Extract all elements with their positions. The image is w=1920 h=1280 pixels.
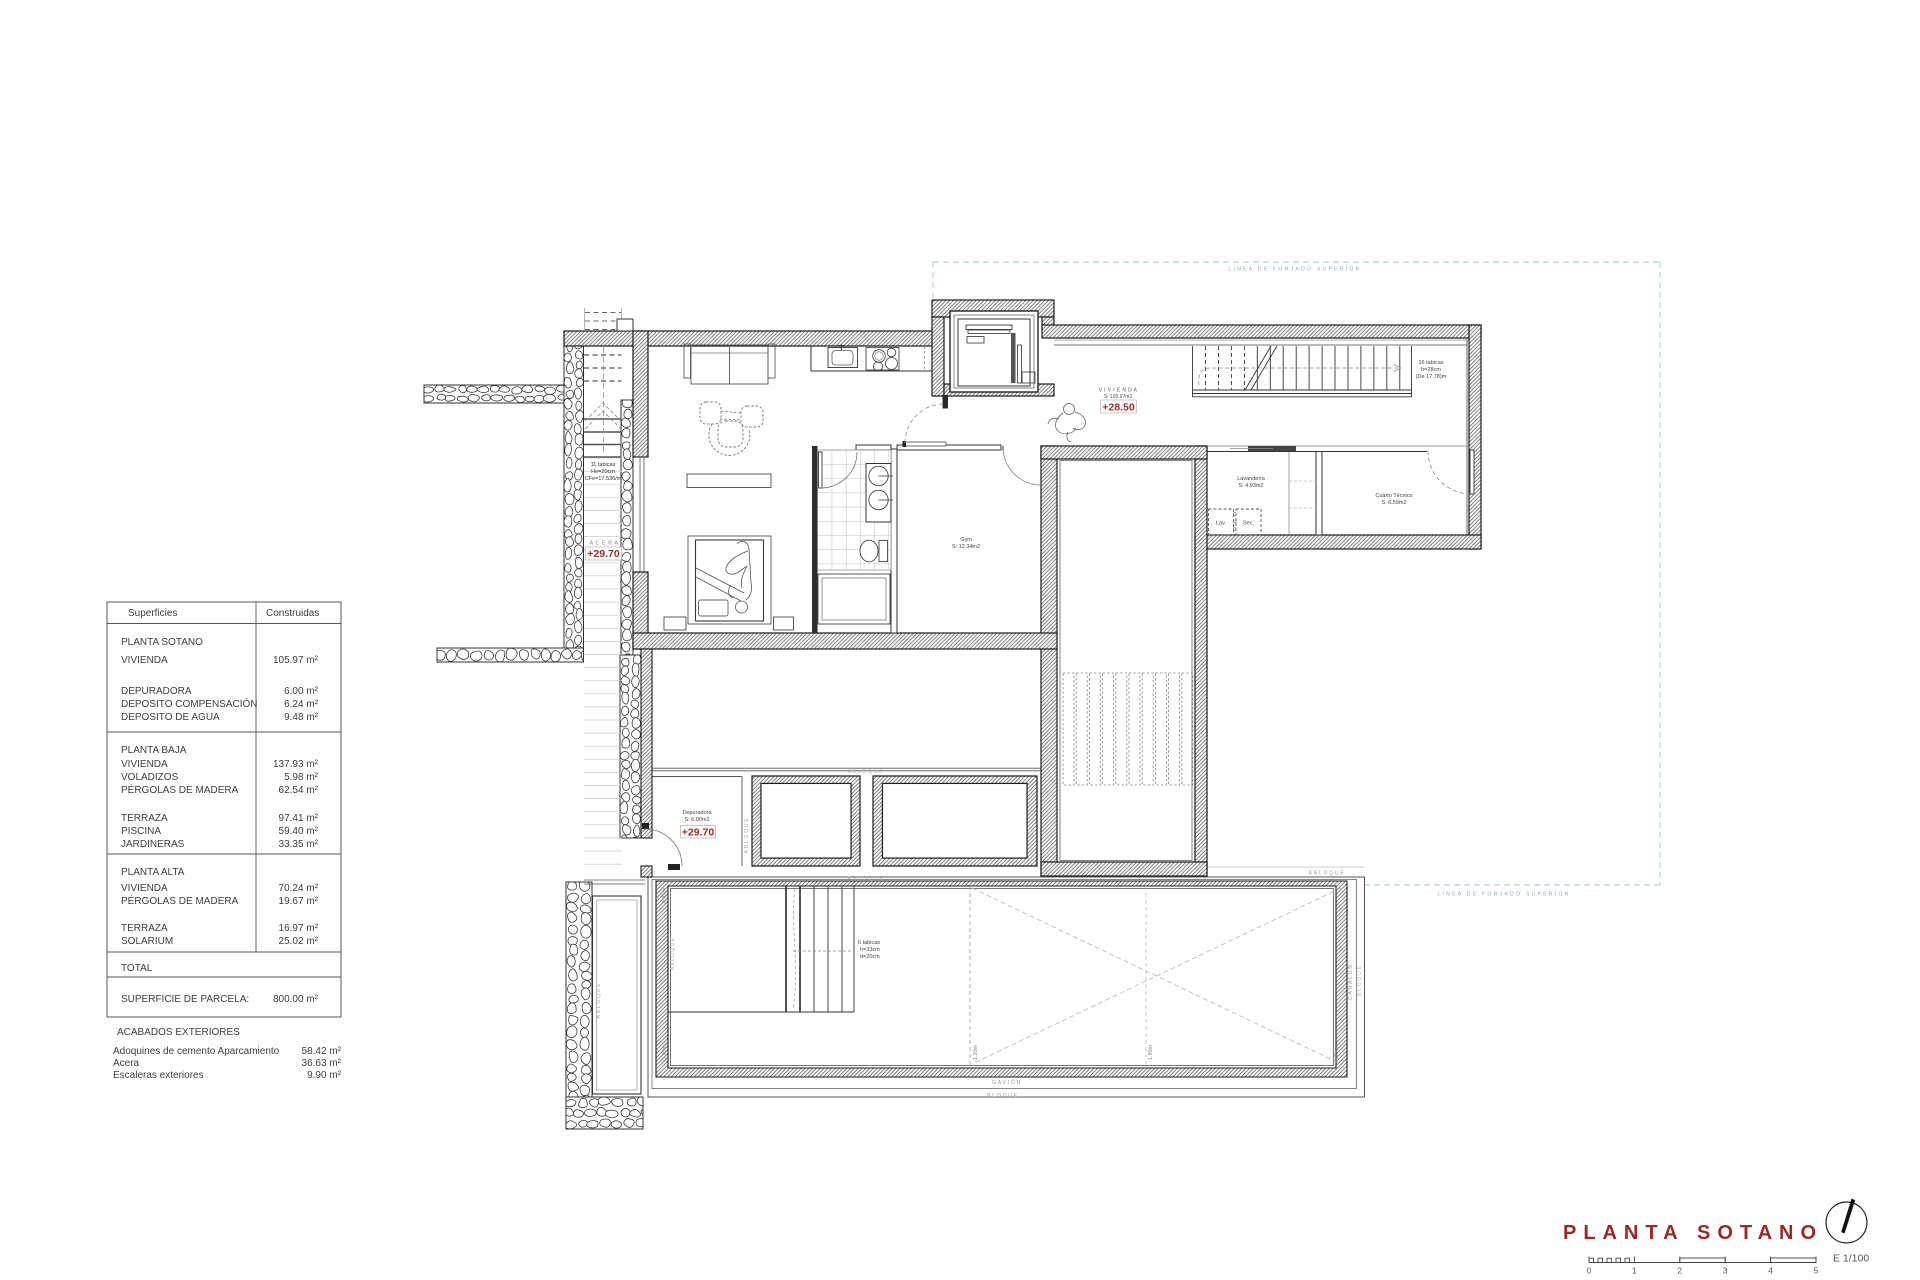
svg-text:58.42 m²: 58.42 m²: [302, 1046, 342, 1057]
svg-text:S: 105.97m2: S: 105.97m2: [1104, 394, 1133, 400]
svg-text:SOLARIUM: SOLARIUM: [121, 936, 173, 947]
svg-text:25.02 m²: 25.02 m²: [279, 936, 319, 947]
svg-text:70.24 m²: 70.24 m²: [279, 883, 319, 894]
svg-text:PLANTA SOTANO: PLANTA SOTANO: [121, 637, 203, 648]
svg-text:ACABADOS EXTERIORES: ACABADOS EXTERIORES: [117, 1027, 240, 1038]
svg-text:TOTAL: TOTAL: [121, 963, 153, 974]
svg-text:6.24 m²: 6.24 m²: [284, 699, 319, 710]
svg-text:ABLOQUE: ABLOQUE: [1309, 871, 1346, 877]
svg-text:9.90 m²: 9.90 m²: [307, 1070, 342, 1081]
svg-text:h=28cm: h=28cm: [1421, 367, 1441, 373]
svg-text:Acera: Acera: [113, 1058, 140, 1069]
svg-text:DEPOSITO DE AGUA: DEPOSITO DE AGUA: [121, 712, 220, 723]
svg-text:0: 0: [1587, 1266, 1592, 1276]
svg-text:33.35 m²: 33.35 m²: [279, 839, 319, 850]
svg-text:TERRAZA: TERRAZA: [121, 923, 168, 934]
svg-text:137.93 m²: 137.93 m²: [273, 759, 319, 770]
svg-text:1: 1: [1632, 1266, 1637, 1276]
svg-text:+29.70: +29.70: [587, 548, 620, 560]
svg-text:PÉRGOLAS DE MADERA: PÉRGOLAS DE MADERA: [121, 783, 239, 796]
svg-text:LINEA DE FORJADO SUPERIOR: LINEA DE FORJADO SUPERIOR: [1437, 892, 1570, 898]
svg-text:TERRAZA: TERRAZA: [121, 813, 168, 824]
svg-text:19.67 m²: 19.67 m²: [279, 896, 319, 907]
svg-text:CFe=17.536/m: CFe=17.536/m: [585, 476, 622, 482]
svg-text:DEPURADORA: DEPURADORA: [121, 686, 192, 697]
svg-text:PÉRGOLAS DE MADERA: PÉRGOLAS DE MADERA: [121, 894, 239, 907]
svg-text:6.00 m²: 6.00 m²: [284, 686, 319, 697]
svg-text:4: 4: [1768, 1266, 1773, 1276]
svg-text:5.98 m²: 5.98 m²: [284, 772, 319, 783]
svg-text:-0.35m: -0.35m: [662, 887, 668, 905]
svg-text:+28.50: +28.50: [1102, 401, 1135, 413]
svg-text:V I V I E N D A: V I V I E N D A: [1099, 388, 1138, 394]
svg-text:E 1/100: E 1/100: [1833, 1253, 1869, 1265]
svg-text:VIVIENDA: VIVIENDA: [121, 883, 168, 894]
svg-text:LINEA DE FORJADO SUPERIOR: LINEA DE FORJADO SUPERIOR: [1228, 267, 1361, 273]
svg-text:800.00 m²: 800.00 m²: [273, 994, 319, 1005]
svg-text:h=33cm: h=33cm: [860, 947, 880, 953]
svg-text:36.63 m²: 36.63 m²: [302, 1058, 342, 1069]
svg-text:VOLADIZOS: VOLADIZOS: [121, 772, 179, 783]
svg-text:S: 6.59m2: S: 6.59m2: [1381, 500, 1406, 506]
svg-text:Gym: Gym: [960, 537, 972, 543]
svg-text:(De 17.78)m: (De 17.78)m: [1416, 374, 1447, 380]
svg-text:16.97 m²: 16.97 m²: [279, 923, 319, 934]
svg-text:d=20cm: d=20cm: [860, 954, 880, 960]
svg-text:ABLOQUE: ABLOQUE: [744, 817, 750, 854]
svg-text:BLOQUE: BLOQUE: [987, 1093, 1019, 1099]
svg-text:Lav.: Lav.: [1216, 521, 1226, 527]
svg-text:Sec.: Sec.: [1243, 521, 1254, 527]
svg-text:Cuarto Técnico: Cuarto Técnico: [1375, 493, 1412, 499]
svg-text:He=20cm: He=20cm: [591, 469, 615, 475]
svg-text:PISCINA: PISCINA: [121, 826, 161, 837]
svg-text:Escaleras exteriores: Escaleras exteriores: [113, 1070, 204, 1081]
svg-text:Superficies: Superficies: [128, 608, 177, 619]
svg-text:A B L O Q U E: A B L O Q U E: [670, 937, 676, 970]
svg-text:ABLOQUE: ABLOQUE: [596, 982, 602, 1019]
svg-text:+29.70: +29.70: [682, 826, 715, 838]
svg-text:A C E R A: A C E R A: [590, 541, 619, 547]
svg-text:Construidas: Construidas: [266, 608, 319, 619]
svg-text:VIVIENDA: VIVIENDA: [121, 655, 168, 666]
svg-text:-1.90m: -1.90m: [1148, 1044, 1154, 1062]
svg-text:DEPOSITO COMPENSACIÓN: DEPOSITO COMPENSACIÓN: [121, 697, 258, 710]
svg-text:SUPERFICIE DE PARCELA:: SUPERFICIE DE PARCELA:: [121, 994, 249, 1005]
svg-text:S: 4.93m2: S: 4.93m2: [1238, 483, 1263, 489]
svg-text:GAVIÓN: GAVIÓN: [992, 1079, 1022, 1086]
svg-text:BLOQUE: BLOQUE: [1357, 964, 1363, 996]
svg-text:PLANTA ALTA: PLANTA ALTA: [121, 867, 185, 878]
svg-text:PLANTA BAJA: PLANTA BAJA: [121, 745, 187, 756]
svg-text:16 tabicas: 16 tabicas: [1418, 360, 1443, 366]
svg-text:S: 6.00m2: S: 6.00m2: [684, 817, 709, 823]
svg-text:JARDINERAS: JARDINERAS: [121, 839, 185, 850]
svg-text:S: 12.34m2: S: 12.34m2: [952, 544, 980, 550]
svg-text:ABLOQUE: ABLOQUE: [848, 876, 885, 882]
svg-text:62.54 m²: 62.54 m²: [279, 785, 319, 796]
svg-text:2: 2: [1677, 1266, 1682, 1276]
svg-text:Depuradora: Depuradora: [682, 810, 712, 816]
svg-text:105.97 m²: 105.97 m²: [273, 655, 319, 666]
svg-text:5: 5: [1814, 1266, 1819, 1276]
svg-text:-1.45m: -1.45m: [1334, 1046, 1340, 1064]
svg-text:3: 3: [1723, 1266, 1728, 1276]
svg-text:ABLOQUE: ABLOQUE: [848, 769, 885, 775]
svg-text:VIVIENDA: VIVIENDA: [121, 759, 168, 770]
svg-text:97.41 m²: 97.41 m²: [279, 813, 319, 824]
svg-text:Lavandería: Lavandería: [1237, 476, 1265, 482]
svg-text:-1.20m: -1.20m: [973, 1044, 979, 1062]
svg-text:-1.20m: -1.20m: [662, 1044, 668, 1062]
svg-text:11 tabicas: 11 tabicas: [591, 462, 616, 468]
svg-text:9.48 m²: 9.48 m²: [284, 712, 319, 723]
svg-text:CANALÓN: CANALÓN: [1347, 963, 1354, 1000]
svg-text:Adoquines de cemento Aparcamie: Adoquines de cemento Aparcamiento: [113, 1046, 280, 1057]
svg-text:6 tabicas: 6 tabicas: [858, 940, 880, 946]
svg-text:59.40 m²: 59.40 m²: [279, 826, 319, 837]
